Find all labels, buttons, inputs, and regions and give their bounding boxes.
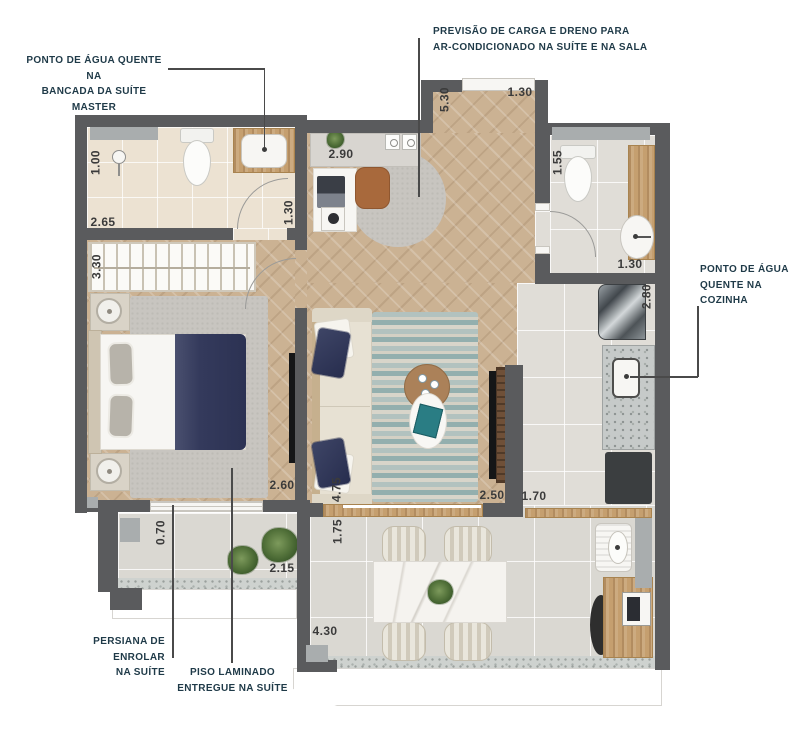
hot-water-point-kitchen: [624, 374, 629, 379]
annotation-laminate-floor: PISO LAMINADO ENTREGUE NA SUÍTE: [175, 665, 290, 696]
bath2-faucet: [637, 236, 651, 238]
dim-living-width: 2.50: [474, 489, 510, 502]
suite-balcony-niche: [120, 518, 140, 542]
bath2-faucet-dot: [633, 234, 638, 239]
annotation-roller-blind: PERSIANA DE ENROLAR NA SUÍTE: [50, 634, 165, 681]
leader-hot-water-kitchen-h: [630, 376, 698, 378]
stove: [605, 452, 652, 504]
wall-living-bottom-b: [483, 503, 505, 517]
dim-masterbath-shower: 1.00: [90, 145, 103, 181]
lamp-bottom: [96, 458, 122, 484]
suite-balcony-window: [150, 501, 263, 512]
leader-laminate-floor: [231, 468, 233, 663]
left-wall-niche: [87, 497, 98, 508]
shelf-appliance-2: [402, 134, 417, 150]
terrace-right-niche: [635, 518, 652, 588]
leader-roller-blind: [172, 505, 174, 658]
leader-ac-provision: [418, 38, 420, 197]
floor-plan: 1.00 2.65 1.30 3.30 2.90 5.30 1.30 1.55 …: [0, 0, 800, 737]
wall-entry-left: [421, 80, 433, 133]
annotation-line: QUENTE NA: [700, 278, 800, 294]
annotation-line: PERSIANA DE ENROLAR: [50, 634, 165, 665]
office-plant: [327, 131, 344, 148]
dim-entry-door: 1.30: [502, 86, 538, 99]
laptop: [317, 176, 345, 208]
wall-suite-balcony-corner: [110, 588, 142, 610]
floor-suite-doorway: [295, 250, 307, 308]
sofa-seat-line: [320, 406, 370, 407]
annotation-line: PISO LAMINADO: [175, 665, 290, 681]
office-printer-disc: [328, 213, 339, 224]
dining-chair-3: [382, 622, 426, 661]
dim-terrace-width: 4.30: [307, 625, 343, 638]
dim-entry-corridor: 5.30: [439, 82, 452, 118]
dim-suite-balcony-width: 2.15: [264, 562, 300, 575]
annotation-line: PREVISÃO DE CARGA E DRENO PARA: [433, 24, 653, 40]
shelf-appliance-1: [385, 134, 400, 150]
leader-hot-water-kitchen-v: [697, 306, 699, 377]
wall-living-bottom-a: [310, 503, 323, 517]
terrace-appliance-screen: [627, 597, 640, 621]
wall-top-left: [75, 115, 307, 127]
masterbath-niche: [90, 127, 158, 140]
wall-masterbath-bottom-a: [87, 228, 233, 240]
annotation-hot-water-suite: PONTO DE ÁGUA QUENTE NA BANCADA DA SUÍTE…: [22, 53, 166, 115]
suite-closet-hangers: [88, 242, 256, 292]
leader-hot-water-suite-v: [264, 68, 266, 149]
dim-masterbath-depth: 1.30: [283, 195, 296, 231]
dim-suite-balcony-depth: 0.70: [155, 515, 168, 551]
terrace-wall-niche: [306, 645, 328, 662]
lamp-top: [96, 298, 122, 324]
hot-water-point-master: [262, 147, 267, 152]
annotation-line: ENTREGUE NA SUÍTE: [175, 681, 290, 697]
wall-bath2-bottom: [535, 273, 655, 284]
leader-hot-water-suite-h: [168, 68, 265, 70]
bed-pillow-1: [107, 342, 135, 387]
shower-head-icon: [112, 150, 126, 164]
coffee-cup-2: [430, 380, 439, 389]
dim-kitchen: 2.80: [641, 279, 654, 315]
wall-suite-balcony-left: [98, 512, 118, 592]
wall-right-outer: [655, 123, 670, 670]
dining-chair-4: [444, 622, 492, 661]
bed-pillow-2: [107, 394, 135, 439]
bath2-door-jamb-bottom: [535, 246, 550, 254]
dim-masterbath-width: 2.65: [85, 216, 121, 229]
laundry-faucet-dot: [615, 545, 620, 550]
dim-bath2-depth: 1.55: [552, 145, 565, 181]
annotation-hot-water-kitchen: PONTO DE ÁGUA QUENTE NA COZINHA: [700, 262, 800, 309]
dim-living-length: 4.75: [331, 472, 344, 508]
living-terrace-door-track: [343, 505, 481, 508]
wall-bath2-left-a: [535, 135, 550, 211]
dim-office: 2.90: [323, 148, 359, 161]
dim-bath2-width: 1.30: [612, 258, 648, 271]
dim-kitchen-passage: 1.70: [516, 490, 552, 503]
dim-suite-width: 2.60: [264, 479, 300, 492]
annotation-ac-provision: PREVISÃO DE CARGA E DRENO PARA AR-CONDIC…: [433, 24, 653, 55]
wall-bath2-left-b: [535, 254, 550, 275]
wall-left-outer: [75, 115, 87, 513]
annotation-line: NA SUÍTE: [50, 665, 165, 681]
annotation-line: PONTO DE ÁGUA QUENTE NA: [22, 53, 166, 84]
kitchen-terrace-threshold: [525, 508, 652, 518]
dim-closet: 3.30: [91, 249, 104, 285]
living-tv: [489, 371, 496, 479]
wall-office-top: [300, 120, 433, 133]
annotation-line: AR-CONDICIONADO NA SUÍTE E NA SALA: [433, 40, 653, 56]
office-chair: [355, 167, 390, 209]
bath2-niche: [552, 127, 650, 140]
shower-stem: [118, 164, 120, 176]
annotation-line: BANCADA DA SUÍTE MASTER: [22, 84, 166, 115]
coffee-cup-1: [418, 374, 427, 383]
annotation-line: COZINHA: [700, 293, 800, 309]
annotation-line: PONTO DE ÁGUA: [700, 262, 800, 278]
dining-chair-1: [382, 526, 426, 565]
dim-terrace-depth: 1.75: [332, 514, 345, 550]
dining-chair-2: [444, 526, 492, 565]
floor-master-bath-doorway: [233, 228, 287, 240]
bed-blanket: [175, 334, 246, 450]
terrace-rim: [293, 668, 662, 706]
bath2-door-jamb-top: [535, 203, 550, 211]
